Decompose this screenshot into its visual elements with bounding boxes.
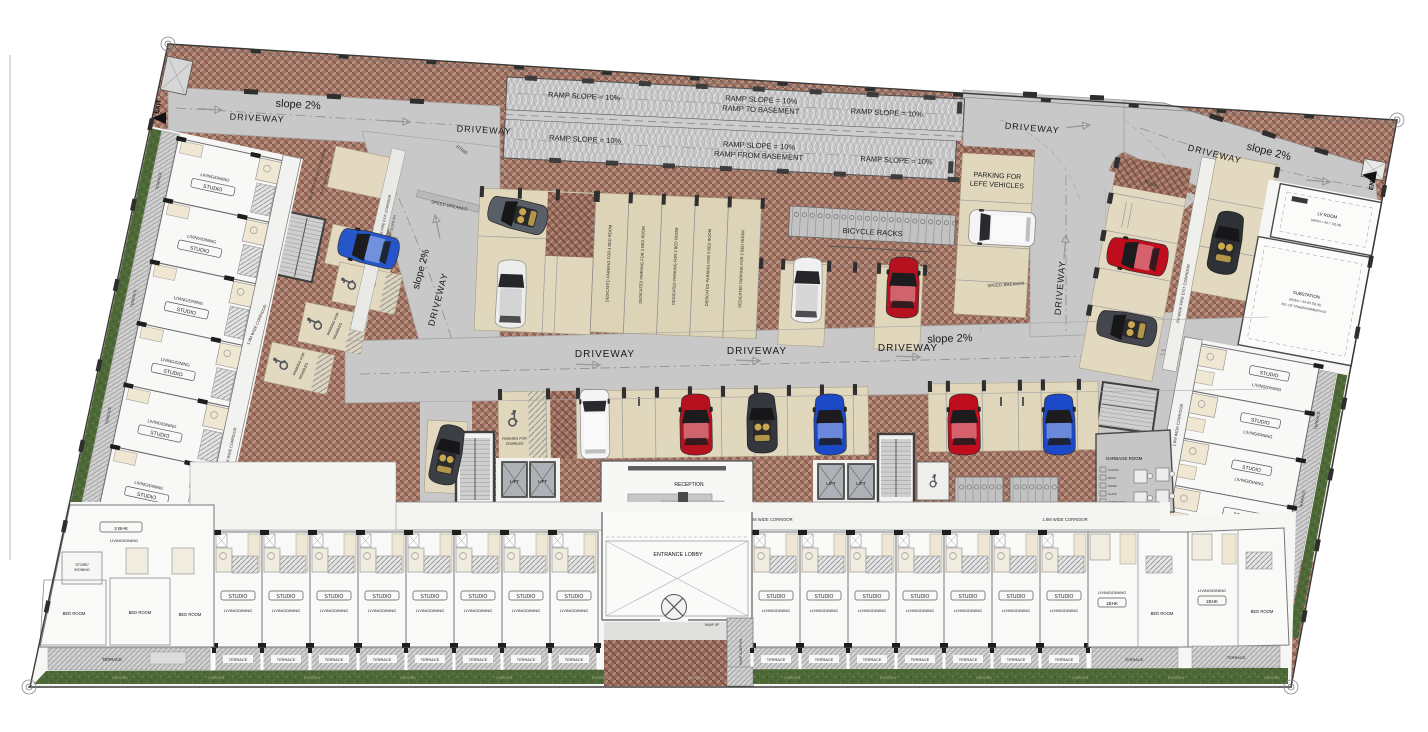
svg-text:GARDEN: GARDEN: [112, 676, 129, 680]
svg-text:LIVING/DINING: LIVING/DINING: [368, 608, 396, 613]
svg-text:STUDIO: STUDIO: [325, 594, 344, 600]
svg-text:BED ROOM: BED ROOM: [1251, 609, 1274, 614]
svg-text:STUDIO: STUDIO: [767, 594, 786, 600]
svg-text:PLASTIC: PLASTIC: [1108, 468, 1119, 472]
svg-text:STUDIO: STUDIO: [229, 594, 248, 600]
svg-text:BED ROOM: BED ROOM: [1151, 611, 1174, 616]
svg-text:GARBAGE ROOM: GARBAGE ROOM: [1106, 456, 1143, 461]
svg-text:LIFT: LIFT: [856, 481, 866, 486]
svg-text:STORE/: STORE/: [75, 563, 88, 567]
svg-text:RECEPTION: RECEPTION: [674, 482, 704, 488]
svg-text:TERRACE: TERRACE: [1227, 655, 1246, 660]
svg-text:3 BHK: 3 BHK: [114, 526, 129, 532]
svg-text:LIVING/DINING: LIVING/DINING: [954, 608, 982, 613]
svg-text:1.8M WIDE CORRIDOR: 1.8M WIDE CORRIDOR: [1042, 517, 1087, 522]
svg-text:GARDEN: GARDEN: [1072, 676, 1089, 680]
svg-text:DRIVEWAY: DRIVEWAY: [727, 346, 787, 357]
svg-text:GARDEN: GARDEN: [304, 676, 321, 680]
svg-text:TERRACE: TERRACE: [229, 657, 248, 662]
svg-text:GARDEN: GARDEN: [208, 676, 225, 680]
svg-text:1.5M WIDE CORRIDOR: 1.5M WIDE CORRIDOR: [747, 517, 792, 522]
svg-text:TERRACE: TERRACE: [911, 657, 930, 662]
svg-text:TERRACE: TERRACE: [469, 657, 488, 662]
svg-text:LIVING/DINING: LIVING/DINING: [464, 608, 492, 613]
svg-text:RAMP UP: RAMP UP: [705, 623, 719, 627]
svg-text:TERRACE: TERRACE: [517, 657, 536, 662]
svg-text:DISABLED: DISABLED: [506, 442, 524, 446]
svg-text:GARDEN: GARDEN: [1168, 676, 1185, 680]
svg-text:1BHK: 1BHK: [1206, 599, 1219, 604]
svg-text:TERRACE: TERRACE: [1125, 657, 1144, 662]
svg-text:STUDIO: STUDIO: [959, 594, 978, 600]
svg-text:LIVING/DINING: LIVING/DINING: [906, 608, 934, 613]
svg-text:TERRACE: TERRACE: [1055, 657, 1074, 662]
svg-text:LIVING/DINING: LIVING/DINING: [1002, 608, 1030, 613]
svg-text:slope 2%: slope 2%: [927, 332, 973, 346]
svg-text:STUDIO: STUDIO: [421, 594, 440, 600]
svg-text:LIVING/DINING: LIVING/DINING: [320, 608, 348, 613]
svg-text:TERRACE: TERRACE: [767, 657, 786, 662]
svg-text:PAPER: PAPER: [1108, 484, 1117, 488]
svg-text:STUDIO: STUDIO: [373, 594, 392, 600]
svg-text:LIVING/DINING: LIVING/DINING: [1098, 590, 1126, 595]
svg-text:GARDEN: GARDEN: [880, 676, 897, 680]
svg-text:STUDIO: STUDIO: [1055, 594, 1074, 600]
svg-text:STUDIO: STUDIO: [469, 594, 488, 600]
svg-text:TERRACE: TERRACE: [959, 657, 978, 662]
svg-text:LIFT: LIFT: [826, 481, 836, 486]
svg-text:LIVING/DINING: LIVING/DINING: [858, 608, 886, 613]
svg-text:IRONING: IRONING: [74, 568, 90, 572]
svg-text:TERRACE: TERRACE: [325, 657, 344, 662]
svg-text:LIFT: LIFT: [538, 479, 548, 484]
svg-text:METAL: METAL: [1108, 476, 1117, 480]
svg-text:GLASS: GLASS: [1108, 492, 1117, 496]
svg-text:BED ROOM: BED ROOM: [63, 611, 86, 616]
svg-text:GARDEN: GARDEN: [496, 676, 513, 680]
svg-text:ENTRANCE LOBBY: ENTRANCE LOBBY: [653, 552, 703, 558]
svg-text:RAMP SLOPE 8%: RAMP SLOPE 8%: [739, 639, 743, 665]
svg-text:TERRACE: TERRACE: [277, 657, 296, 662]
svg-text:TERRACE: TERRACE: [421, 657, 440, 662]
svg-text:BED ROOM: BED ROOM: [179, 612, 202, 617]
svg-text:LIVING/DINING: LIVING/DINING: [1050, 608, 1078, 613]
svg-text:LIVING/DINING: LIVING/DINING: [224, 608, 252, 613]
svg-text:GARDEN: GARDEN: [784, 676, 801, 680]
svg-text:STUDIO: STUDIO: [565, 594, 584, 600]
svg-text:DRIVEWAY: DRIVEWAY: [575, 349, 635, 360]
svg-text:slope 2%: slope 2%: [275, 98, 321, 113]
svg-text:STUDIO: STUDIO: [1007, 594, 1026, 600]
svg-text:LIVING/DINING: LIVING/DINING: [1198, 588, 1226, 593]
svg-text:STUDIO: STUDIO: [911, 594, 930, 600]
svg-text:TERRACE: TERRACE: [565, 657, 584, 662]
svg-text:PARKING FOR: PARKING FOR: [502, 437, 527, 441]
svg-text:LIVING/DINING: LIVING/DINING: [762, 608, 790, 613]
svg-text:STUDIO: STUDIO: [517, 594, 536, 600]
svg-text:STUDIO: STUDIO: [277, 594, 296, 600]
svg-text:GARDEN: GARDEN: [976, 676, 993, 680]
svg-text:STUDIO: STUDIO: [863, 594, 882, 600]
svg-text:LIVING/DINING: LIVING/DINING: [416, 608, 444, 613]
svg-text:LIVING/DINING: LIVING/DINING: [272, 608, 300, 613]
svg-text:1BHK: 1BHK: [1106, 601, 1119, 606]
svg-text:LIVING/DINING: LIVING/DINING: [512, 608, 540, 613]
svg-text:TERRACE: TERRACE: [373, 657, 392, 662]
svg-text:GARDEN: GARDEN: [688, 676, 705, 680]
svg-text:LIFT: LIFT: [510, 479, 520, 484]
svg-text:TERRACE: TERRACE: [815, 657, 834, 662]
svg-text:LIVING/DINING: LIVING/DINING: [810, 608, 838, 613]
svg-text:LIVING/DINING: LIVING/DINING: [110, 538, 138, 543]
svg-text:TERRACE: TERRACE: [863, 657, 882, 662]
svg-text:TERRACE: TERRACE: [1007, 657, 1026, 662]
svg-text:TERRACE: TERRACE: [102, 657, 122, 662]
svg-text:STUDIO: STUDIO: [815, 594, 834, 600]
svg-text:BED ROOM: BED ROOM: [129, 610, 152, 615]
svg-text:GARDEN: GARDEN: [400, 676, 417, 680]
svg-text:LIVING/DINING: LIVING/DINING: [560, 608, 588, 613]
svg-text:GARDEN: GARDEN: [1264, 676, 1281, 680]
svg-text:GARDEN: GARDEN: [592, 676, 609, 680]
